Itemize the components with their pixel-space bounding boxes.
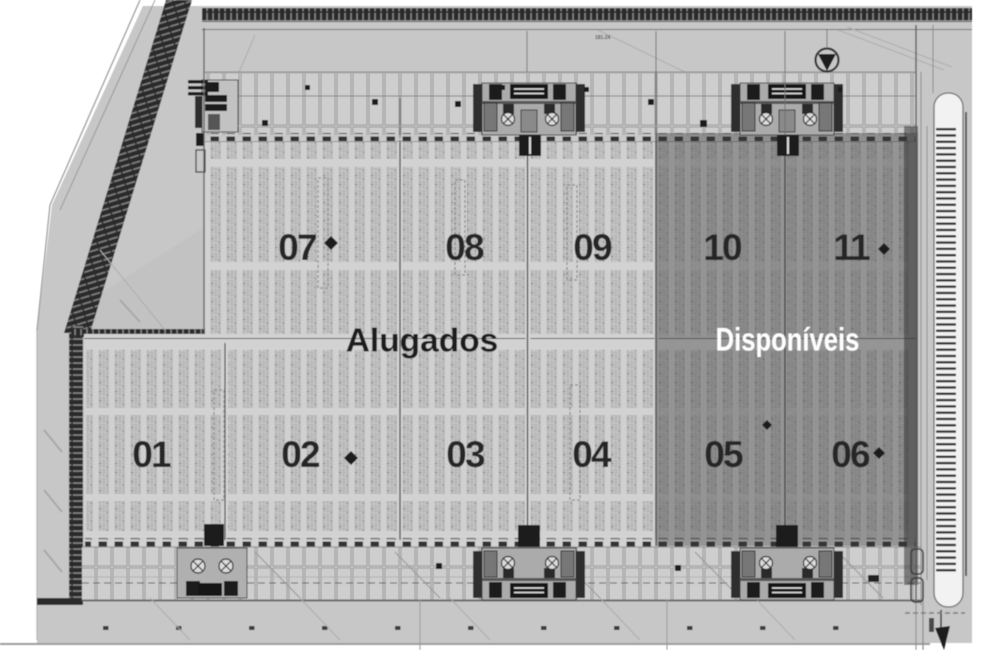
svg-text:06: 06 bbox=[831, 434, 870, 475]
svg-text:04: 04 bbox=[572, 434, 612, 475]
svg-text:Disponíveis: Disponíveis bbox=[716, 323, 860, 358]
svg-text:01: 01 bbox=[132, 434, 171, 475]
svg-text:02: 02 bbox=[281, 434, 320, 475]
svg-text:11: 11 bbox=[833, 227, 870, 268]
svg-text:09: 09 bbox=[573, 227, 612, 268]
svg-text:10: 10 bbox=[703, 227, 742, 268]
svg-text:05: 05 bbox=[704, 434, 743, 475]
svg-text:181.24: 181.24 bbox=[595, 35, 611, 41]
svg-text:07: 07 bbox=[278, 227, 316, 268]
svg-text:03: 03 bbox=[446, 434, 485, 475]
svg-text:Alugados: Alugados bbox=[346, 323, 499, 360]
svg-text:08: 08 bbox=[445, 227, 484, 268]
